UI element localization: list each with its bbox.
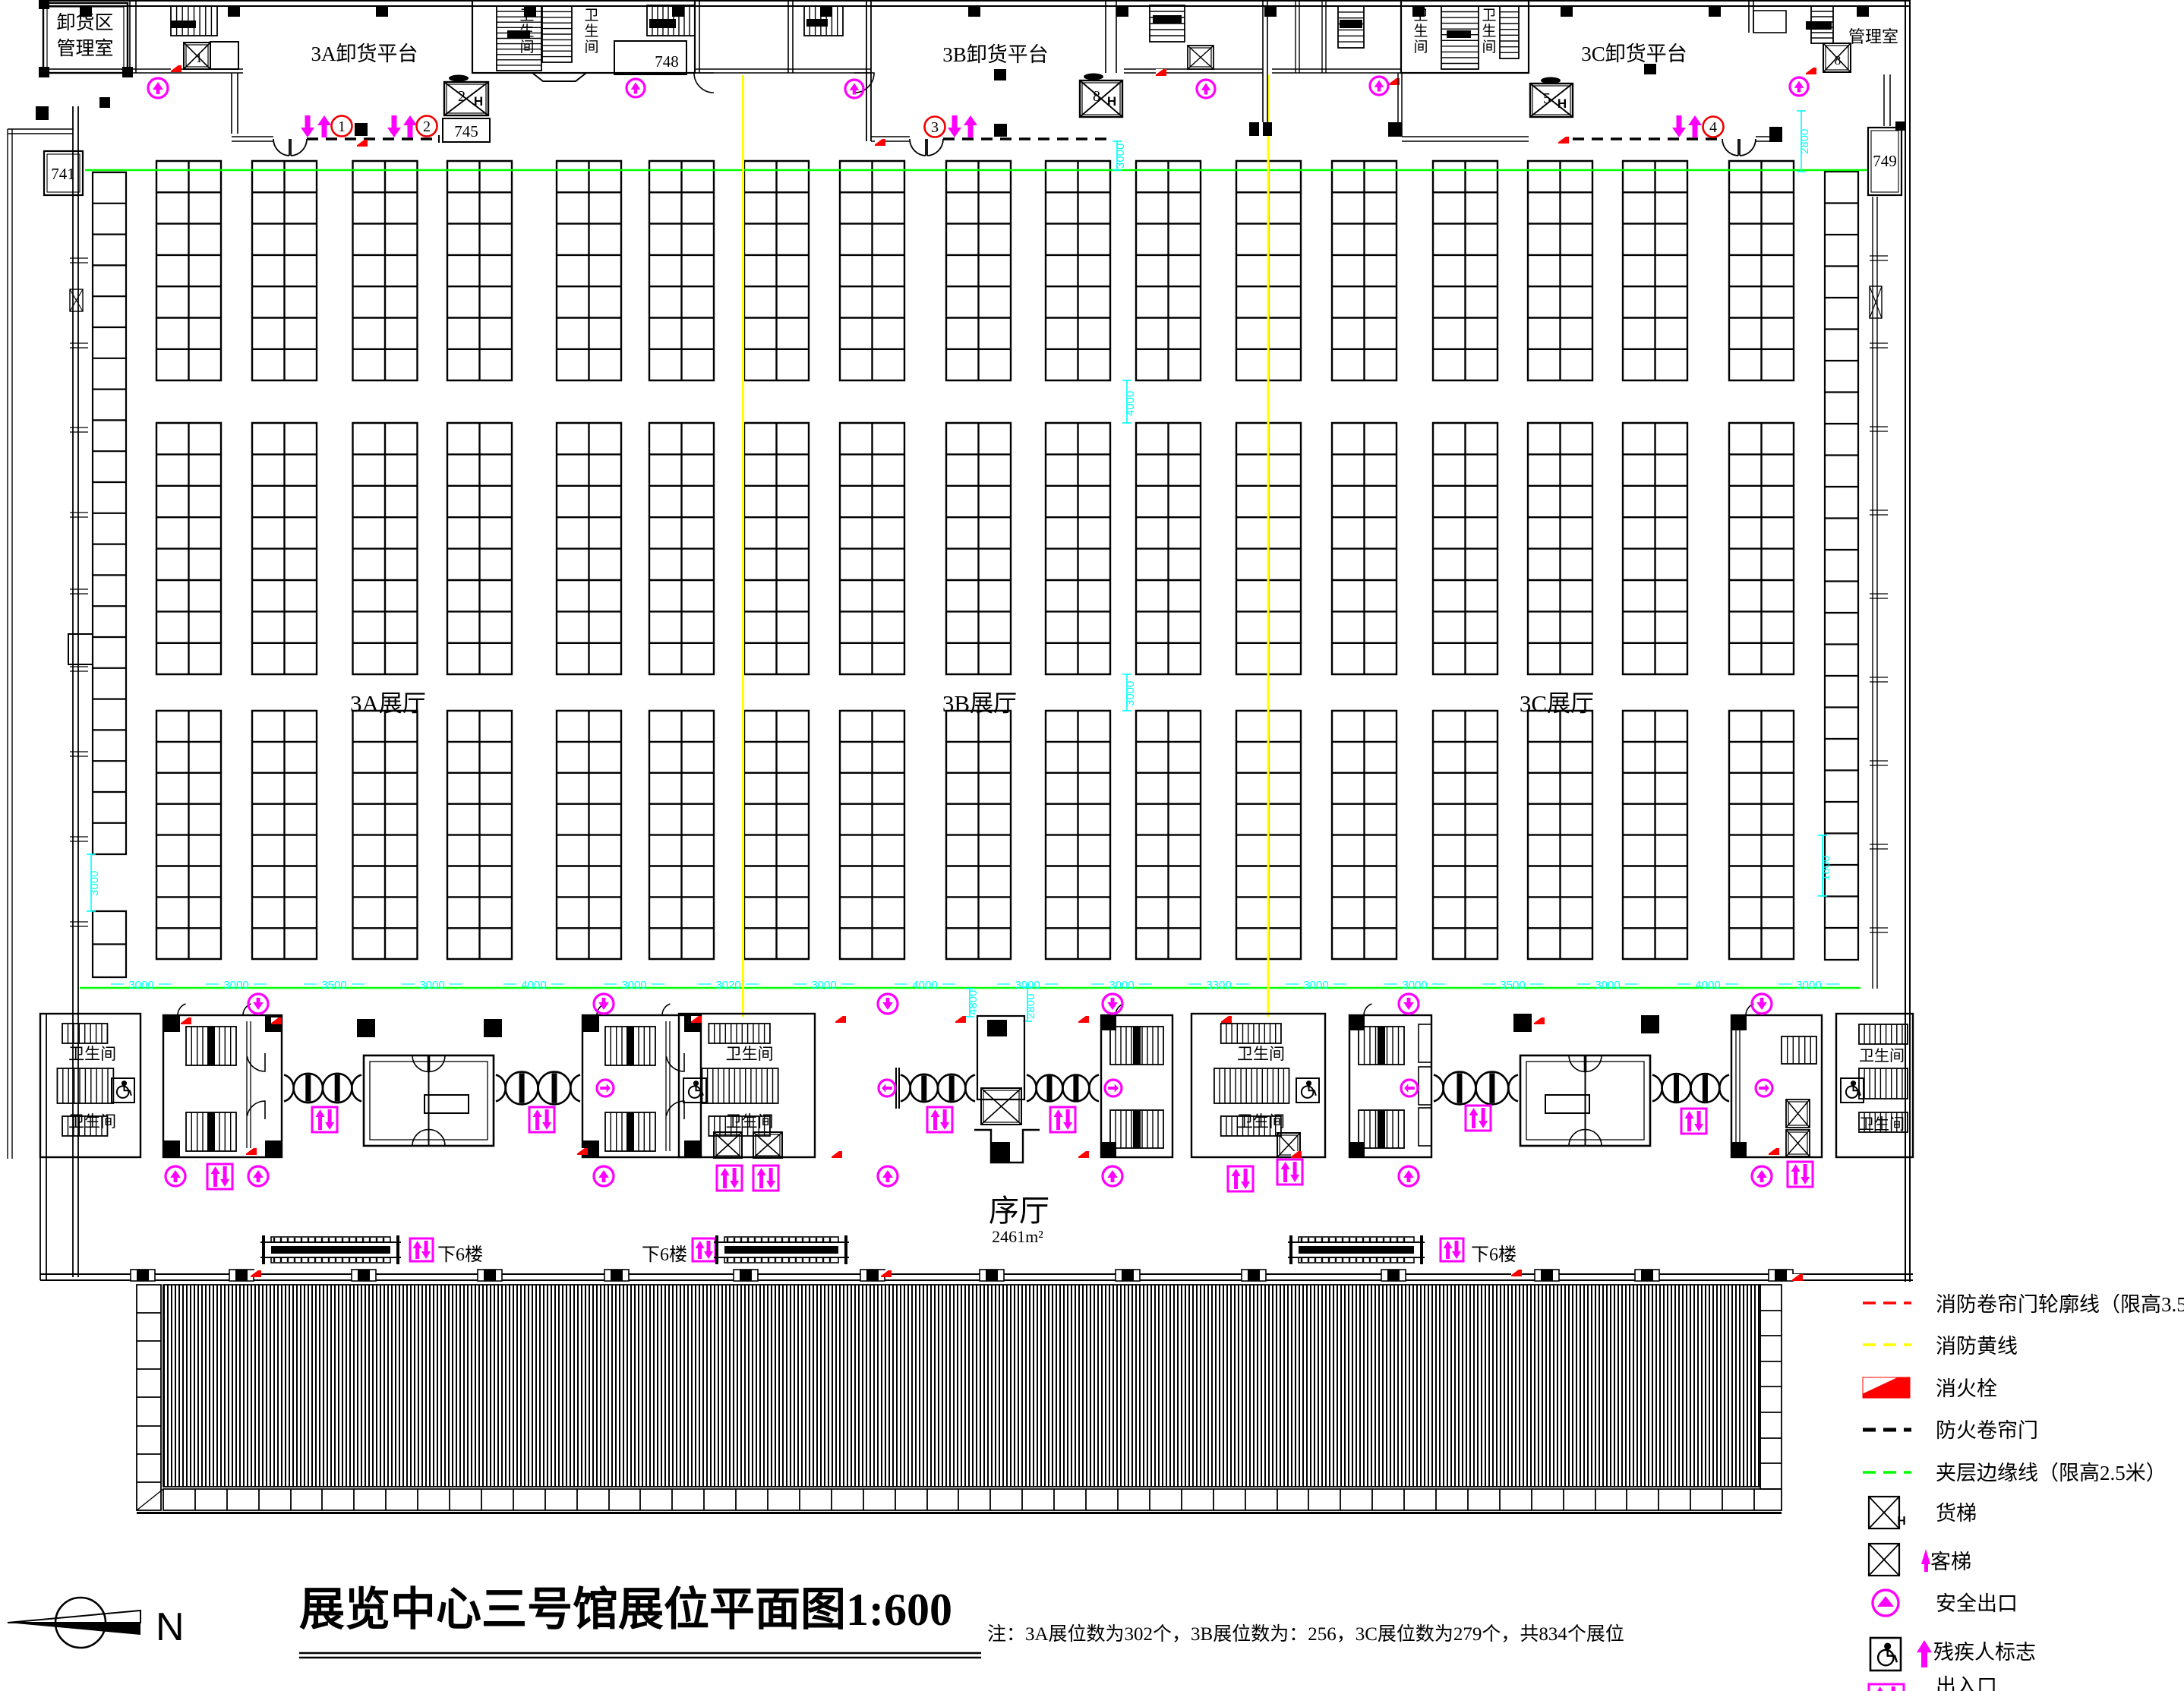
svg-text:4800: 4800	[967, 990, 980, 1015]
svg-text:间: 间	[584, 39, 598, 55]
svg-text:卫: 卫	[519, 8, 534, 24]
svg-text:3000: 3000	[1114, 144, 1127, 169]
svg-text:下6楼: 下6楼	[437, 1245, 483, 1265]
svg-text:卫生间: 卫生间	[68, 1045, 116, 1063]
svg-text:H: H	[1897, 1515, 1906, 1528]
svg-text:生: 生	[519, 23, 534, 39]
svg-text:745: 745	[454, 122, 478, 140]
svg-text:生: 生	[1482, 23, 1496, 39]
svg-text:3500: 3500	[321, 979, 346, 992]
svg-text:3A卸货平台: 3A卸货平台	[311, 43, 418, 65]
svg-text:卫生间: 卫生间	[1859, 1115, 1905, 1133]
svg-text:下6楼: 下6楼	[642, 1245, 687, 1265]
svg-text:2461m²: 2461m²	[992, 1227, 1043, 1246]
svg-text:1800: 1800	[1819, 856, 1832, 881]
svg-text:H: H	[474, 94, 483, 109]
svg-text:夹层边缘线（限高2.5米）: 夹层边缘线（限高2.5米）	[1936, 1462, 2167, 1484]
svg-text:卫生间: 卫生间	[68, 1112, 116, 1131]
svg-text:741: 741	[51, 165, 75, 183]
svg-text:消防黄线: 消防黄线	[1936, 1335, 2018, 1358]
svg-text:1: 1	[338, 118, 346, 135]
svg-text:卫生间: 卫生间	[1237, 1112, 1285, 1131]
svg-text:749: 749	[1873, 152, 1897, 170]
svg-text:注：3A展位数为302个，3B展位数为：256，3C展位数为: 注：3A展位数为302个，3B展位数为：256，3C展位数为279个，共834个…	[987, 1623, 1624, 1645]
svg-text:3000: 3000	[1595, 979, 1620, 992]
svg-text:3000: 3000	[621, 979, 646, 992]
svg-text:客梯: 客梯	[1930, 1551, 1971, 1573]
svg-text:8: 8	[1835, 53, 1842, 68]
svg-text:3A展厅: 3A展厅	[350, 690, 426, 717]
svg-text:卫生间: 卫生间	[726, 1112, 774, 1131]
svg-text:3000: 3000	[223, 979, 248, 992]
svg-text:3000: 3000	[128, 979, 153, 992]
svg-text:3500: 3500	[1500, 979, 1525, 992]
svg-text:3000: 3000	[419, 979, 444, 992]
svg-text:4000: 4000	[912, 979, 937, 992]
svg-text:H: H	[1558, 96, 1567, 111]
svg-text:间: 间	[1482, 39, 1496, 55]
svg-text:序厅: 序厅	[989, 1194, 1049, 1228]
svg-text:管理室: 管理室	[56, 38, 113, 59]
svg-text:卫: 卫	[1413, 8, 1428, 24]
svg-text:3C卸货平台: 3C卸货平台	[1581, 43, 1687, 65]
svg-text:2: 2	[423, 118, 431, 135]
svg-text:2: 2	[458, 88, 466, 105]
svg-text:货梯: 货梯	[1936, 1502, 1977, 1525]
svg-text:下6楼: 下6楼	[1471, 1245, 1516, 1265]
svg-text:5: 5	[1543, 90, 1551, 107]
svg-text:展览中心三号馆展位平面图1:600: 展览中心三号馆展位平面图1:600	[299, 1585, 952, 1635]
svg-text:3000: 3000	[1124, 681, 1137, 706]
svg-text:4000: 4000	[521, 979, 546, 992]
svg-text:卫生间: 卫生间	[1237, 1045, 1285, 1063]
svg-text:N: N	[156, 1605, 185, 1649]
svg-text:3000: 3000	[1303, 979, 1328, 992]
svg-text:3B卸货平台: 3B卸货平台	[942, 43, 1049, 66]
svg-text:3000: 3000	[1796, 979, 1821, 992]
svg-text:3B展厅: 3B展厅	[942, 690, 1017, 717]
svg-text:H: H	[1107, 94, 1116, 109]
svg-text:3000: 3000	[811, 979, 836, 992]
svg-text:8: 8	[1093, 88, 1100, 105]
svg-text:3: 3	[931, 119, 939, 136]
svg-text:出入口: 出入口	[1936, 1675, 1997, 1691]
svg-text:卫: 卫	[1482, 8, 1496, 24]
svg-text:间: 间	[1413, 39, 1428, 55]
svg-text:3020: 3020	[715, 979, 740, 992]
svg-text:生: 生	[584, 23, 598, 39]
svg-text:748: 748	[655, 52, 679, 71]
svg-text:3000: 3000	[1109, 979, 1134, 992]
svg-text:消防卷帘门轮廓线（限高3.5米）: 消防卷帘门轮廓线（限高3.5米）	[1936, 1293, 2184, 1316]
svg-text:间: 间	[519, 39, 534, 55]
svg-text:4000: 4000	[1124, 391, 1137, 416]
svg-text:防火卷帘门: 防火卷帘门	[1936, 1419, 2038, 1442]
svg-text:卸货区: 卸货区	[56, 12, 113, 33]
svg-text:管理室: 管理室	[1848, 27, 1898, 46]
svg-text:1: 1	[196, 51, 203, 65]
svg-text:3300: 3300	[1206, 979, 1231, 992]
svg-text:消火栓: 消火栓	[1936, 1377, 1997, 1400]
svg-text:卫生间: 卫生间	[726, 1045, 774, 1063]
svg-text:3000: 3000	[88, 871, 101, 896]
svg-text:3000: 3000	[1402, 979, 1427, 992]
svg-text:2800: 2800	[1798, 129, 1811, 154]
svg-text:3C展厅: 3C展厅	[1520, 690, 1594, 717]
svg-text:卫生间: 卫生间	[1859, 1047, 1905, 1065]
svg-text:安全出口: 安全出口	[1936, 1592, 2018, 1615]
svg-text:2800: 2800	[1024, 994, 1037, 1019]
svg-text:4: 4	[1709, 119, 1717, 136]
svg-text:4000: 4000	[1695, 979, 1720, 992]
svg-text:残疾人标志: 残疾人标志	[1933, 1641, 2036, 1664]
svg-text:卫: 卫	[584, 8, 598, 24]
svg-text:生: 生	[1413, 23, 1428, 39]
